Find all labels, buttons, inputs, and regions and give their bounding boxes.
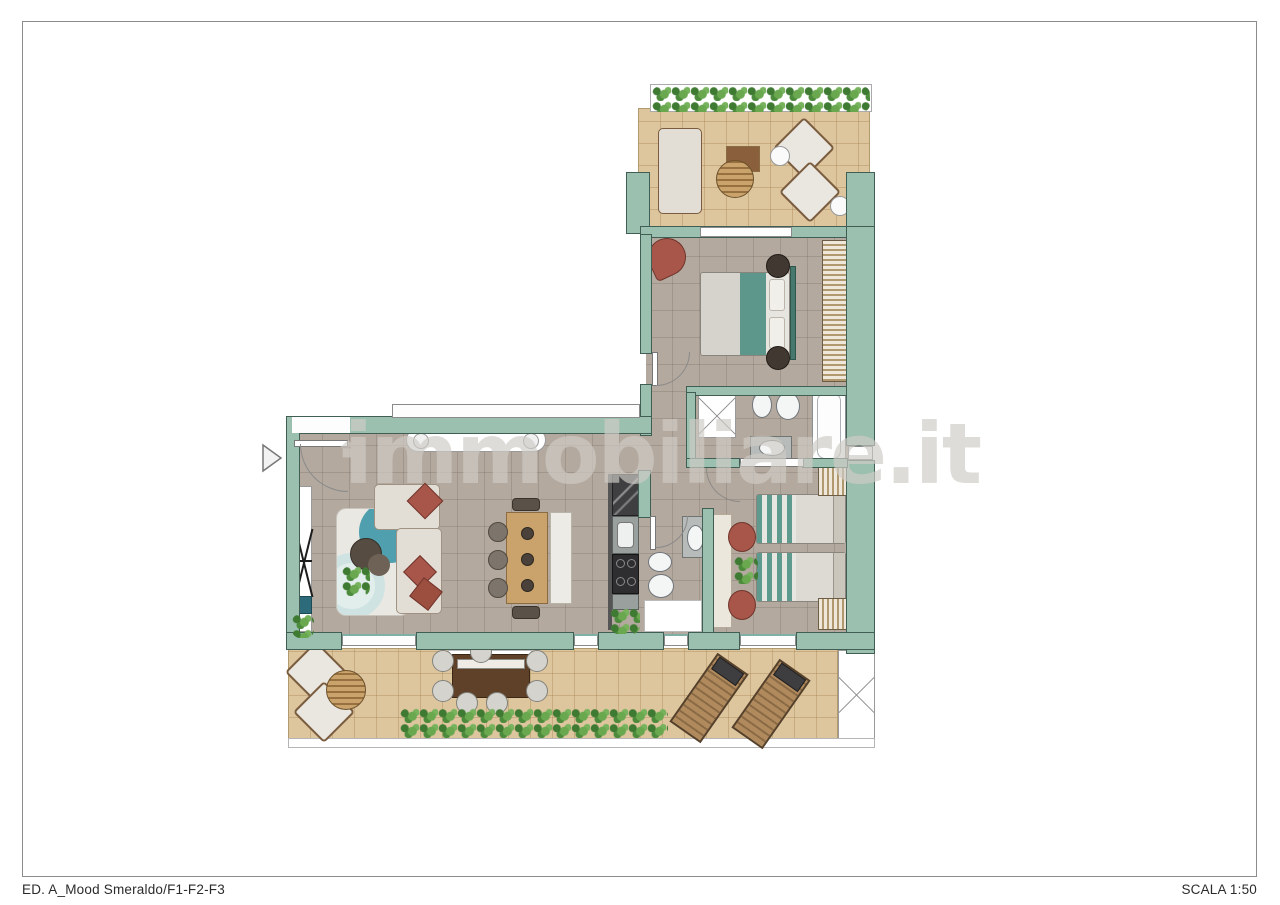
terrace-wall-right: [846, 172, 875, 234]
terrace-rattan-table: [326, 670, 366, 710]
right-outer-wall-lower: [846, 460, 875, 654]
master-wardrobe: [822, 240, 848, 382]
entrance-arrow-icon: [260, 442, 284, 474]
hall-bath-wall: [686, 392, 696, 466]
outdoor-sofa: [658, 128, 702, 214]
bed-duvet: [796, 495, 834, 543]
bottom-wall-seg: [796, 632, 875, 650]
planter-plants: [652, 86, 870, 112]
rug-plant: [342, 566, 370, 596]
bed-striped-blanket: [757, 553, 796, 601]
bedroom-window: [700, 227, 792, 237]
bedroom2-plant: [734, 556, 758, 584]
bathtub-inner: [817, 393, 841, 459]
terrace-parapet: [288, 738, 875, 748]
outdoor-chair: [526, 680, 548, 702]
bed-pillow: [769, 317, 785, 349]
nightstand-bottom: [766, 346, 790, 370]
bed-headboard: [833, 495, 845, 543]
bed-duvet: [796, 553, 834, 601]
bottom-wall-seg: [416, 632, 574, 650]
dining-chair: [488, 522, 508, 542]
bottom-wall-seg: [688, 632, 740, 650]
master-bed: [700, 272, 790, 356]
nightstand-top: [766, 254, 790, 278]
bottom-window: [574, 634, 598, 646]
bottom-wall-seg: [598, 632, 664, 650]
bedroom2-door-leaf: [740, 458, 804, 467]
footer-left-label: ED. A_Mood Smeraldo/F1-F2-F3: [22, 882, 225, 897]
dining-table: [506, 512, 548, 604]
bed-blanket-teal: [740, 273, 766, 355]
bed-pillow-zone: [766, 273, 789, 355]
bed-pillow: [769, 279, 785, 311]
bedroom-bottom-wall: [686, 386, 848, 396]
shower-1: [698, 394, 736, 438]
bath2-bedroom2-wall: [702, 508, 714, 634]
floor-plan-page: immobiliare.it ED. A_Mood Smeraldo/F1-F2…: [0, 0, 1280, 905]
wardrobe-top: [818, 466, 848, 496]
bed-headboard: [833, 553, 845, 601]
dining-bench: [550, 512, 572, 604]
side-table-round-1: [770, 146, 790, 166]
rattan-table: [716, 160, 754, 198]
desk-chair-2: [728, 590, 756, 620]
bed-striped-blanket: [757, 495, 796, 543]
toilet-1: [776, 392, 800, 420]
single-bed-1: [756, 494, 846, 544]
right-wall-window: [848, 446, 873, 460]
bidet-2: [648, 552, 672, 572]
skylight-shaft: [838, 650, 875, 740]
desk-chair-1: [728, 522, 756, 552]
kitchen-tall-units: [612, 474, 639, 516]
coffee-table-small: [368, 554, 390, 576]
single-bed-2: [756, 552, 846, 602]
bath1-bottom-wall-b: [802, 458, 848, 468]
vanity-sink-1: [750, 436, 792, 460]
terrace-wall-left: [626, 172, 650, 234]
bathtub: [812, 388, 846, 464]
shower-2: [644, 600, 702, 632]
kitchen-sink-unit: [612, 516, 639, 554]
entry-opening: [292, 417, 350, 433]
outdoor-chair: [526, 650, 548, 672]
terrace-plants-row: [400, 708, 668, 738]
dining-chair-end: [512, 606, 540, 619]
bed-sheets: [701, 273, 740, 355]
dining-chair: [488, 550, 508, 570]
bottom-window: [664, 634, 688, 646]
outdoor-chair: [432, 650, 454, 672]
storage-box: [299, 596, 312, 614]
living-plant-left: [292, 614, 314, 638]
living-left-wall: [286, 416, 300, 642]
bottom-window: [740, 634, 796, 646]
master-headboard: [790, 266, 796, 360]
corridor-wall-stub: [638, 470, 651, 518]
kitchen-plant: [610, 608, 640, 634]
living-window-band: [392, 404, 640, 418]
dining-chair-end: [512, 498, 540, 511]
footer-right-label: SCALA 1:50: [1181, 882, 1257, 897]
kitchen-cooktop: [612, 554, 639, 594]
sink-basin: [759, 440, 785, 456]
bedroom-left-wall: [640, 234, 652, 354]
bottom-window: [342, 634, 416, 646]
outdoor-chair: [432, 680, 454, 702]
toilet-2: [648, 574, 674, 598]
wardrobe-bottom: [818, 598, 848, 630]
bath1-bottom-wall-a: [686, 458, 740, 468]
right-outer-wall-upper: [846, 226, 875, 446]
dining-chair: [488, 578, 508, 598]
